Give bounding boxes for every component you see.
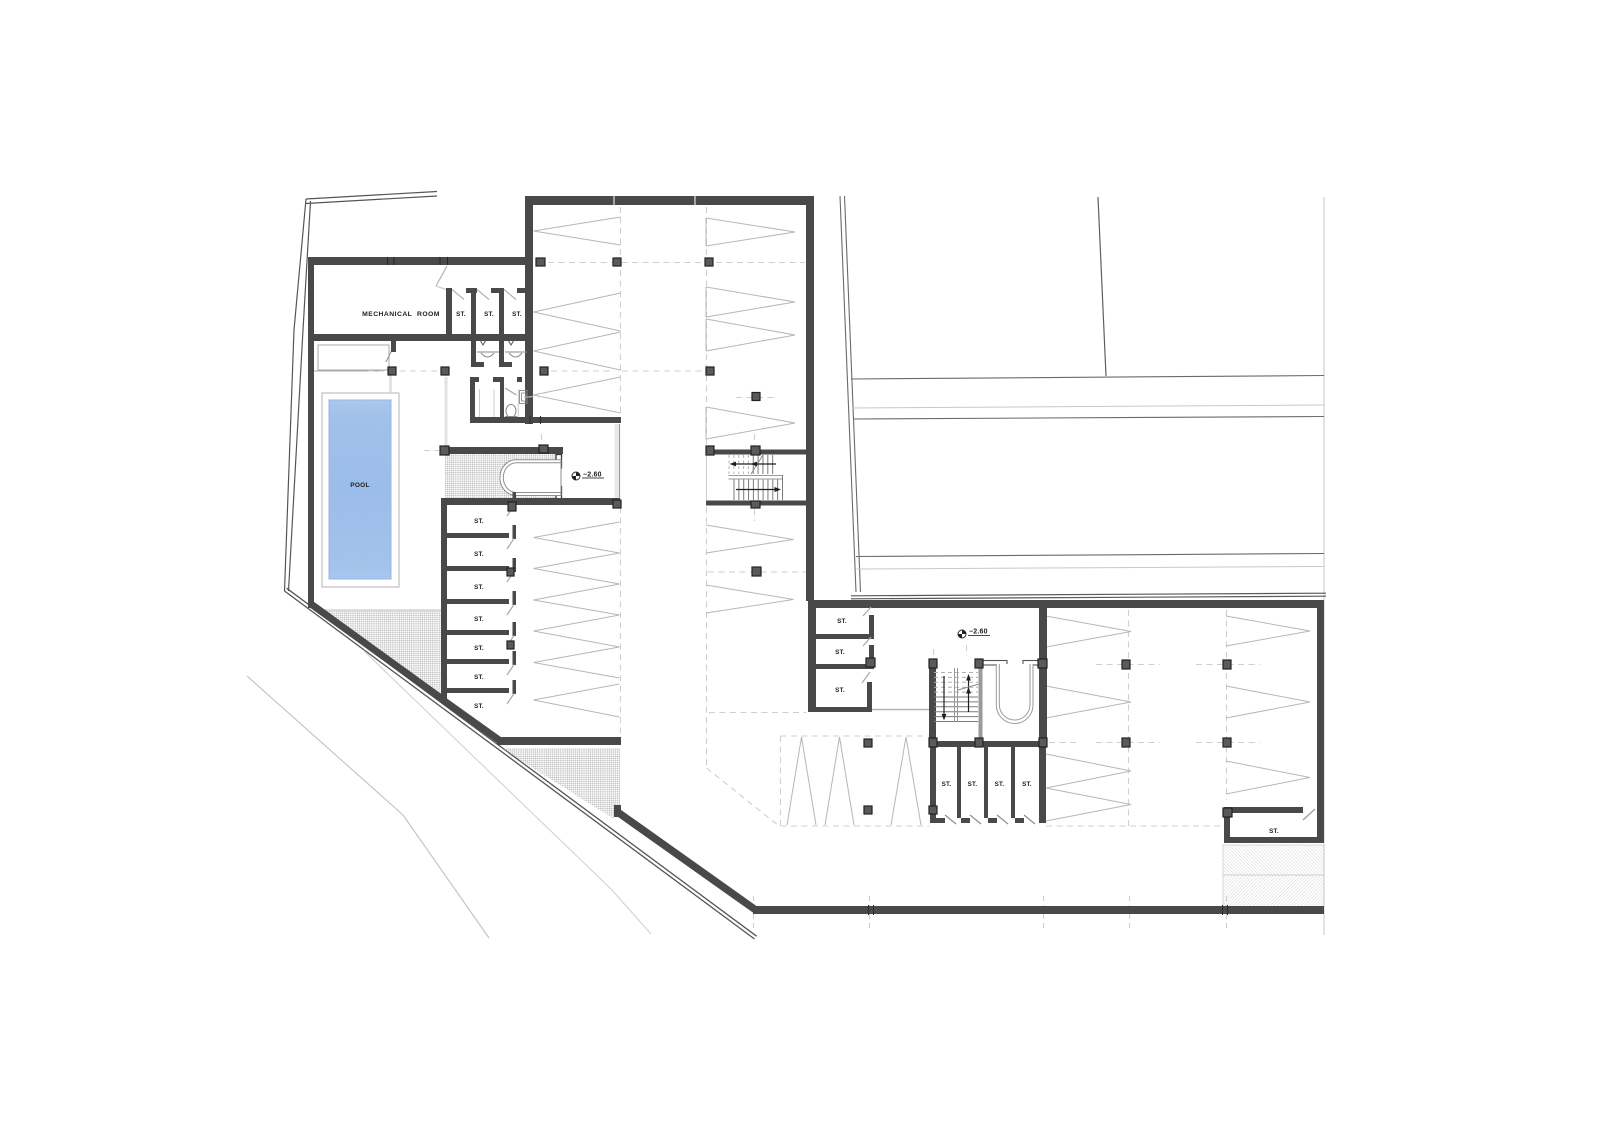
svg-text:ST.: ST. bbox=[456, 311, 466, 318]
svg-text:ST.: ST. bbox=[942, 781, 952, 788]
svg-text:ST.: ST. bbox=[474, 584, 484, 591]
svg-text:ST.: ST. bbox=[1022, 781, 1032, 788]
svg-text:ST.: ST. bbox=[1269, 828, 1279, 835]
svg-text:ST.: ST. bbox=[474, 518, 484, 525]
svg-text:ST.: ST. bbox=[512, 311, 522, 318]
svg-text:ST.: ST. bbox=[474, 551, 484, 558]
svg-text:ST.: ST. bbox=[474, 703, 484, 710]
svg-text:ST.: ST. bbox=[474, 674, 484, 681]
svg-text:−2.60: −2.60 bbox=[583, 472, 602, 479]
svg-text:ST.: ST. bbox=[968, 781, 978, 788]
svg-text:MECHANICAL ROOM: MECHANICAL ROOM bbox=[362, 311, 440, 318]
svg-text:ST.: ST. bbox=[474, 616, 484, 623]
svg-text:ST.: ST. bbox=[835, 687, 845, 694]
svg-text:−2.60: −2.60 bbox=[969, 629, 988, 636]
svg-text:ST.: ST. bbox=[484, 311, 494, 318]
svg-text:ST.: ST. bbox=[995, 781, 1005, 788]
svg-text:POOL: POOL bbox=[350, 482, 370, 489]
svg-text:ST.: ST. bbox=[837, 618, 847, 625]
svg-text:ST.: ST. bbox=[474, 645, 484, 652]
svg-text:ST.: ST. bbox=[835, 649, 845, 656]
